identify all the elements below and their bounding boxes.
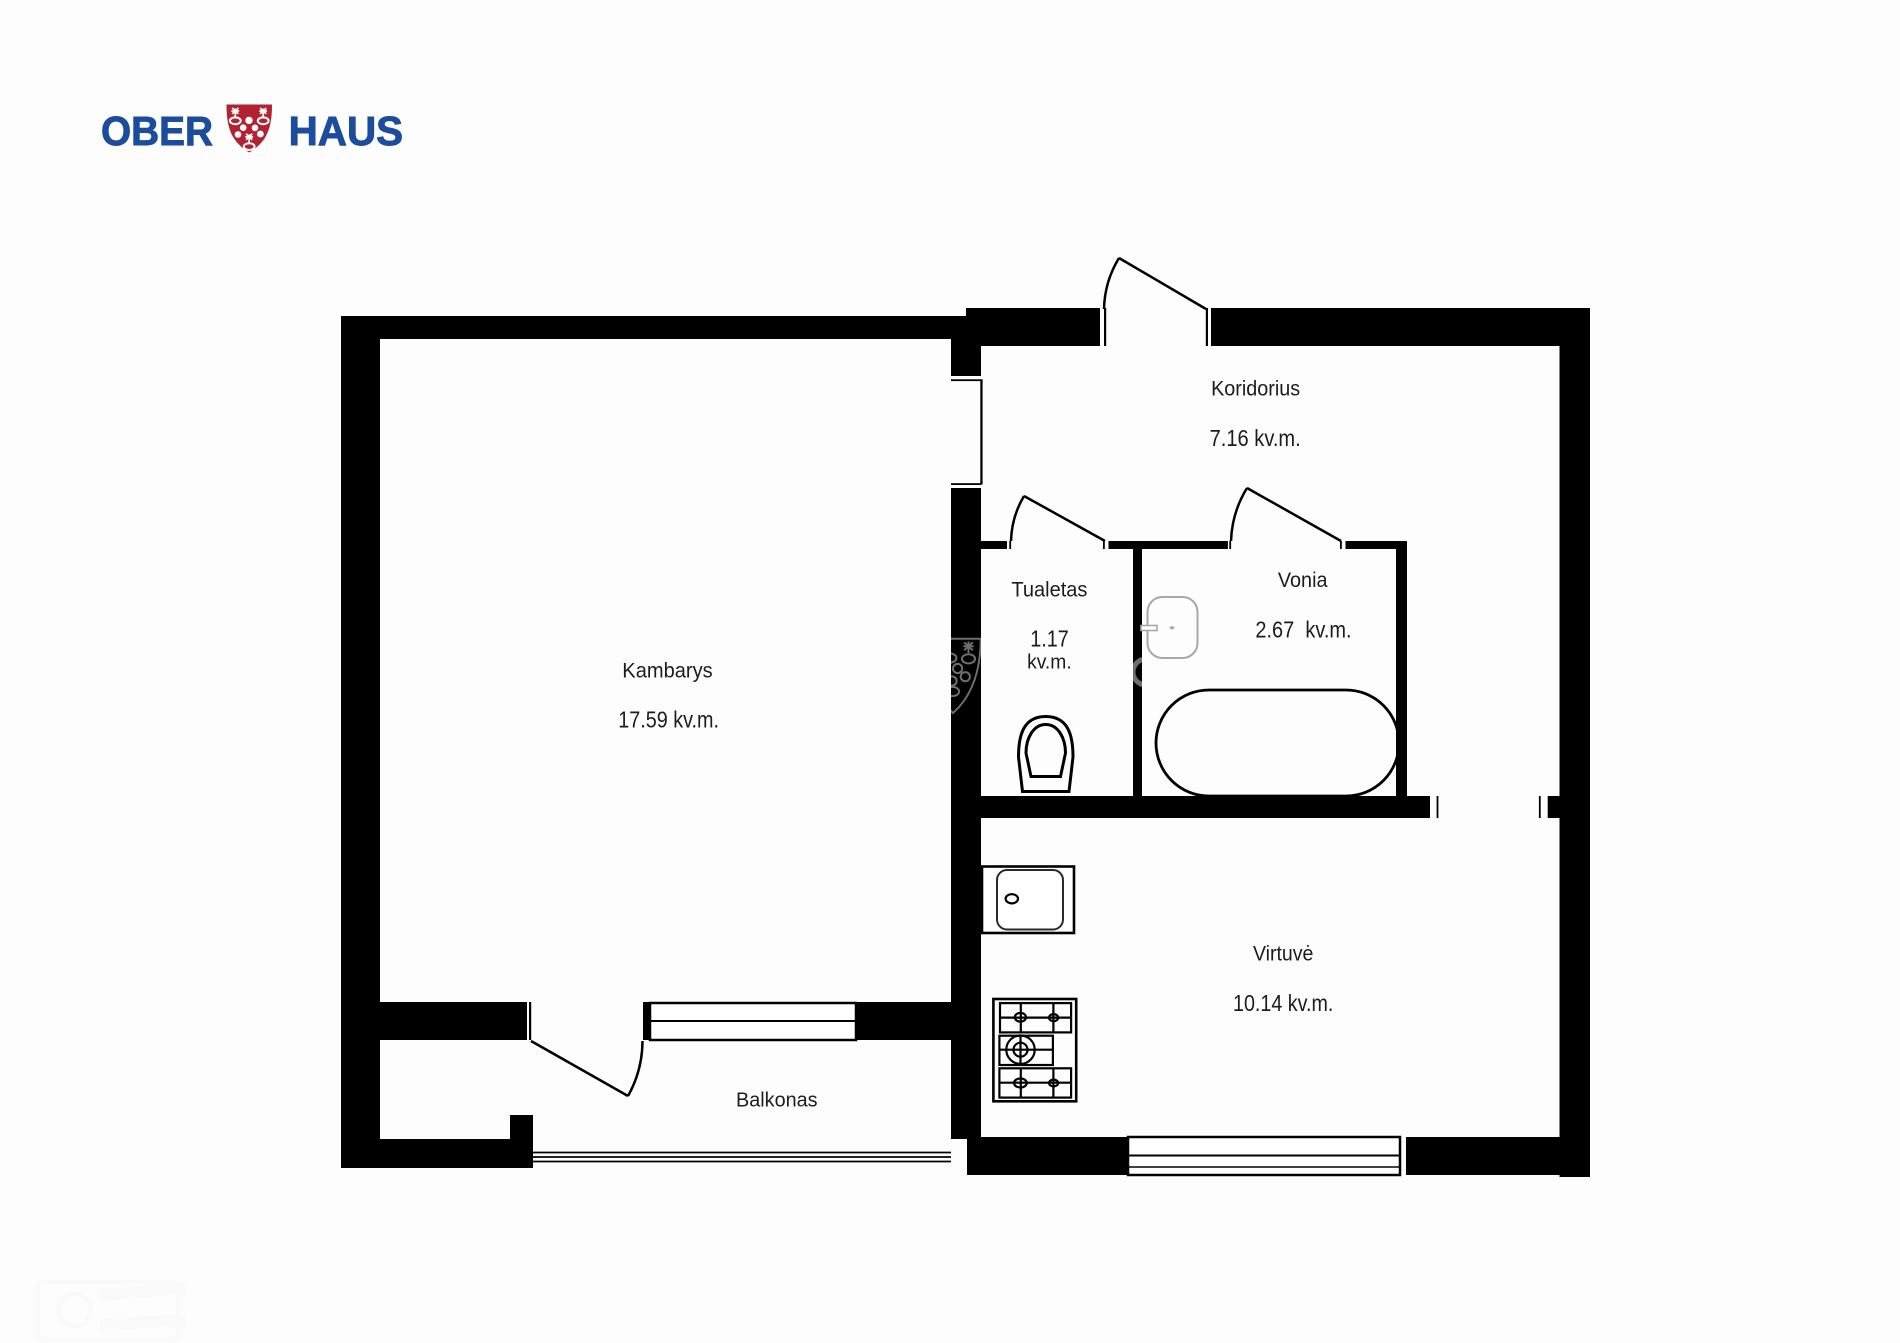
- svg-text:OBER: OBER: [101, 108, 213, 154]
- svg-text:10.14 kv.m.: 10.14 kv.m.: [1233, 990, 1333, 1016]
- svg-text:17.59 kv.m.: 17.59 kv.m.: [618, 707, 719, 733]
- svg-text:Kambarys: Kambarys: [622, 659, 712, 683]
- svg-text:Koridorius: Koridorius: [1211, 376, 1300, 400]
- svg-text:Tualetas: Tualetas: [1011, 578, 1087, 602]
- svg-text:kv.m.: kv.m.: [1027, 650, 1072, 673]
- svg-text:Balkonas: Balkonas: [736, 1089, 818, 1112]
- svg-text:Vonia: Vonia: [1278, 568, 1328, 592]
- svg-text:Virtuvė: Virtuvė: [1253, 941, 1314, 965]
- svg-text:HAUS: HAUS: [289, 108, 404, 154]
- svg-text:2.67 kv.m.: 2.67 kv.m.: [1255, 617, 1351, 643]
- svg-text:7.16 kv.m.: 7.16 kv.m.: [1210, 425, 1301, 451]
- svg-text:1.17: 1.17: [1030, 625, 1069, 651]
